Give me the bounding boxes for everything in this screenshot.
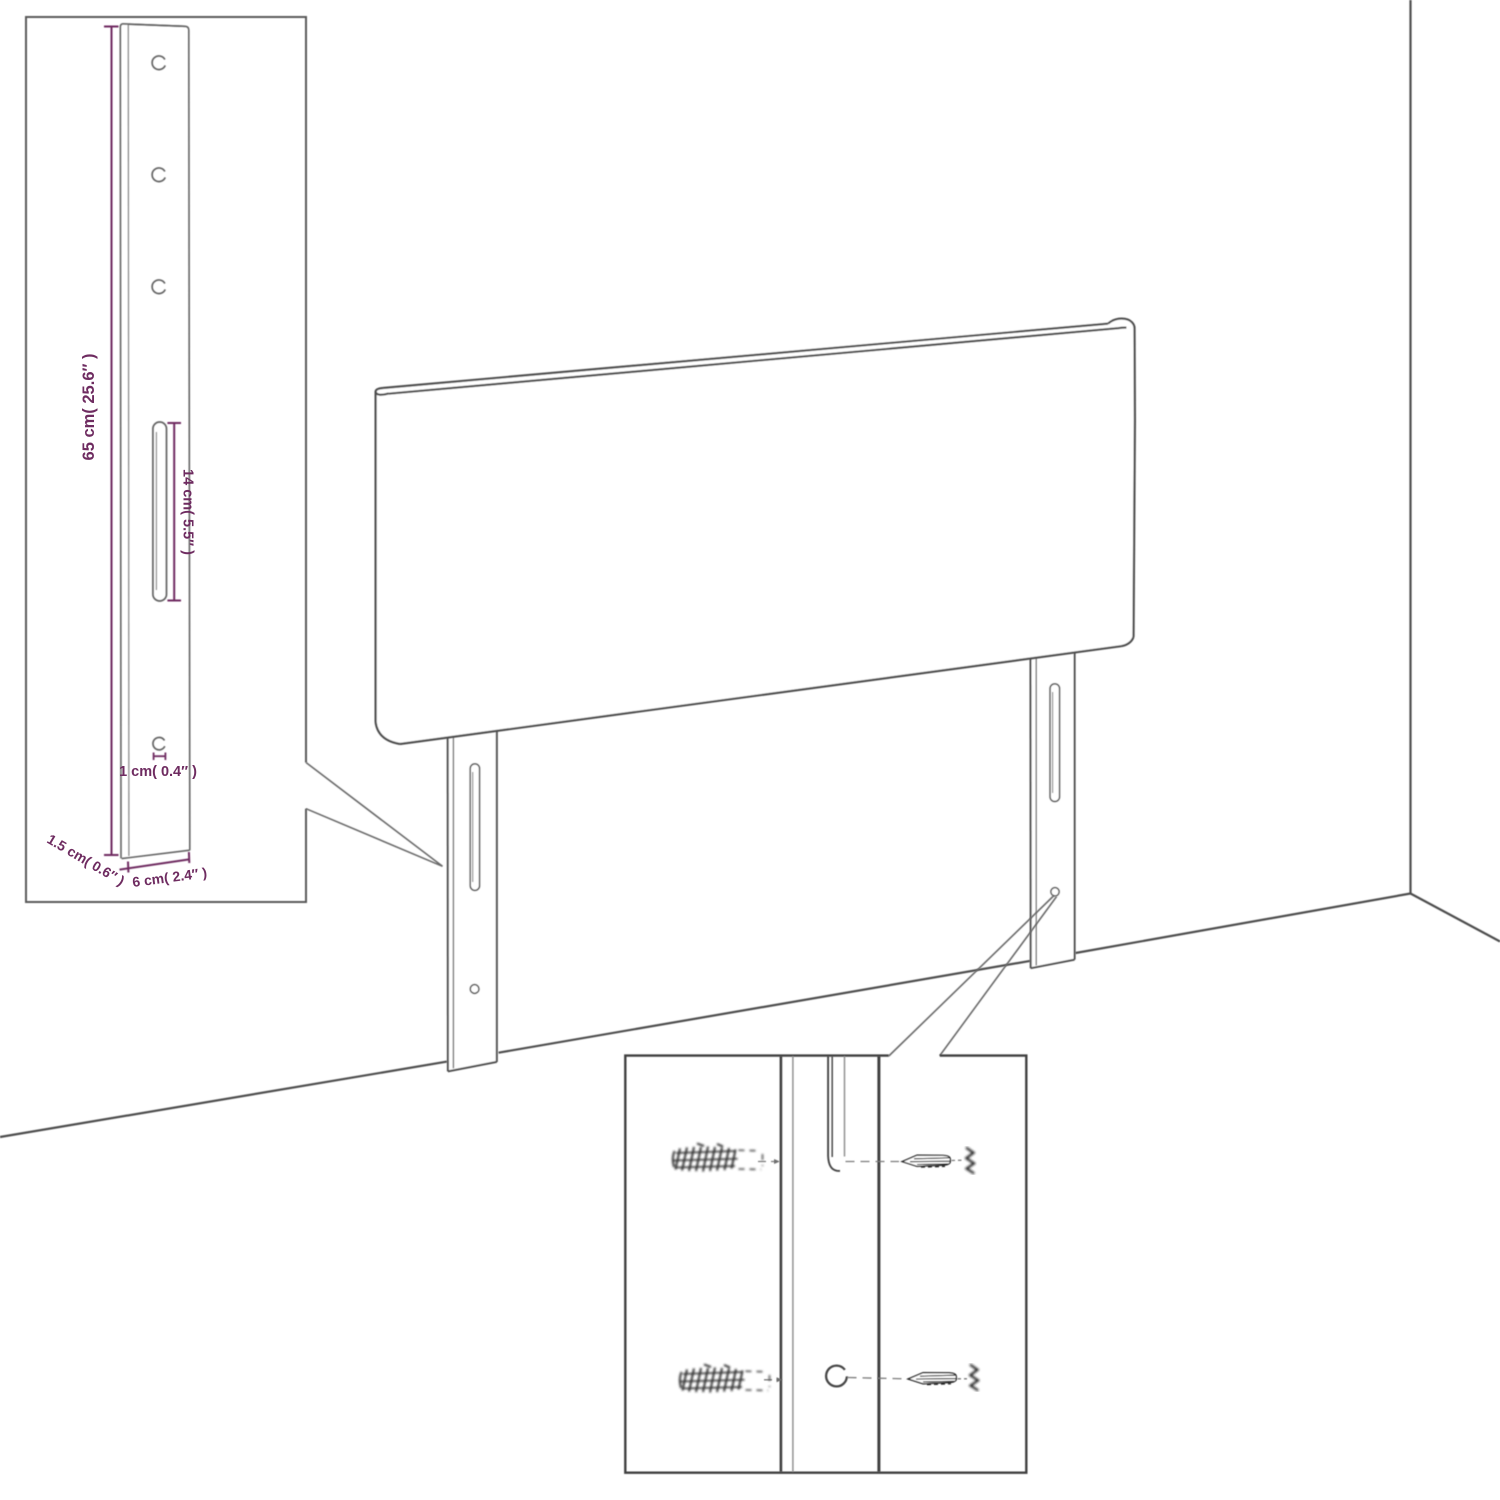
svg-text:1 cm( 0.4″ ): 1 cm( 0.4″ ) [119,764,197,780]
svg-text:65 cm( 25.6″ ): 65 cm( 25.6″ ) [80,354,98,461]
svg-text:14 cm( 5.5″ ): 14 cm( 5.5″ ) [180,469,196,555]
